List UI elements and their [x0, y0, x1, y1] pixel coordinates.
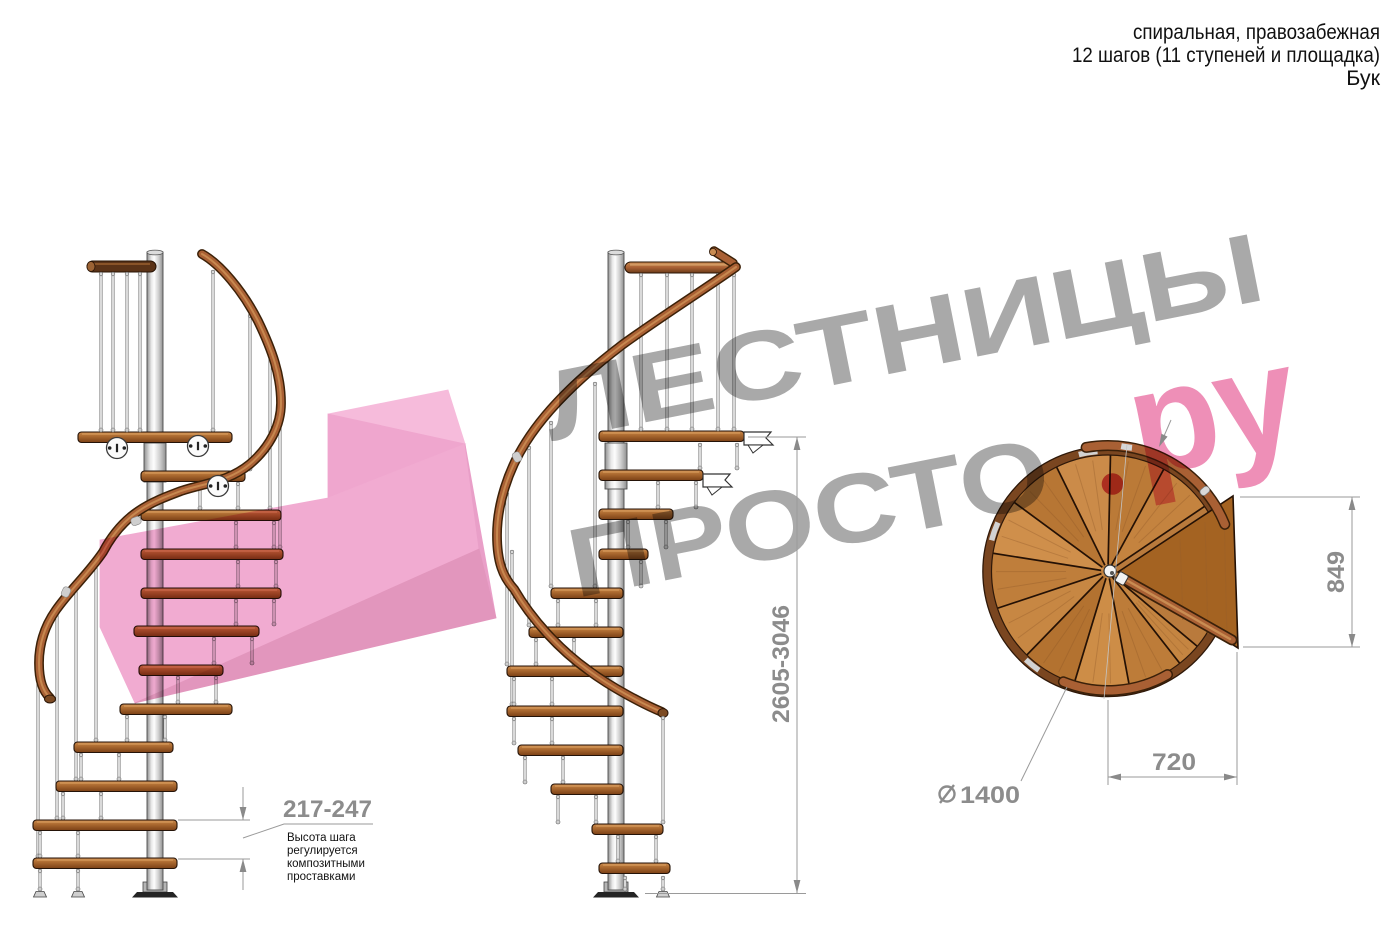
- svg-text:217-247: 217-247: [283, 796, 372, 823]
- svg-text:1400: 1400: [960, 782, 1020, 809]
- svg-text:12 шагов (11 ступеней и площад: 12 шагов (11 ступеней и площадка): [1072, 43, 1380, 67]
- svg-text:2605-3046: 2605-3046: [768, 605, 795, 723]
- svg-text:ру: ру: [1114, 311, 1311, 508]
- svg-text:720: 720: [1152, 749, 1196, 776]
- svg-text:Бук: Бук: [1346, 66, 1380, 90]
- svg-text:Высота шагарегулируетсякомпози: Высота шагарегулируетсякомпозитнымипрост…: [287, 832, 365, 883]
- svg-text:спиральная, правозабежная: спиральная, правозабежная: [1133, 20, 1380, 44]
- svg-text:849: 849: [1323, 551, 1350, 593]
